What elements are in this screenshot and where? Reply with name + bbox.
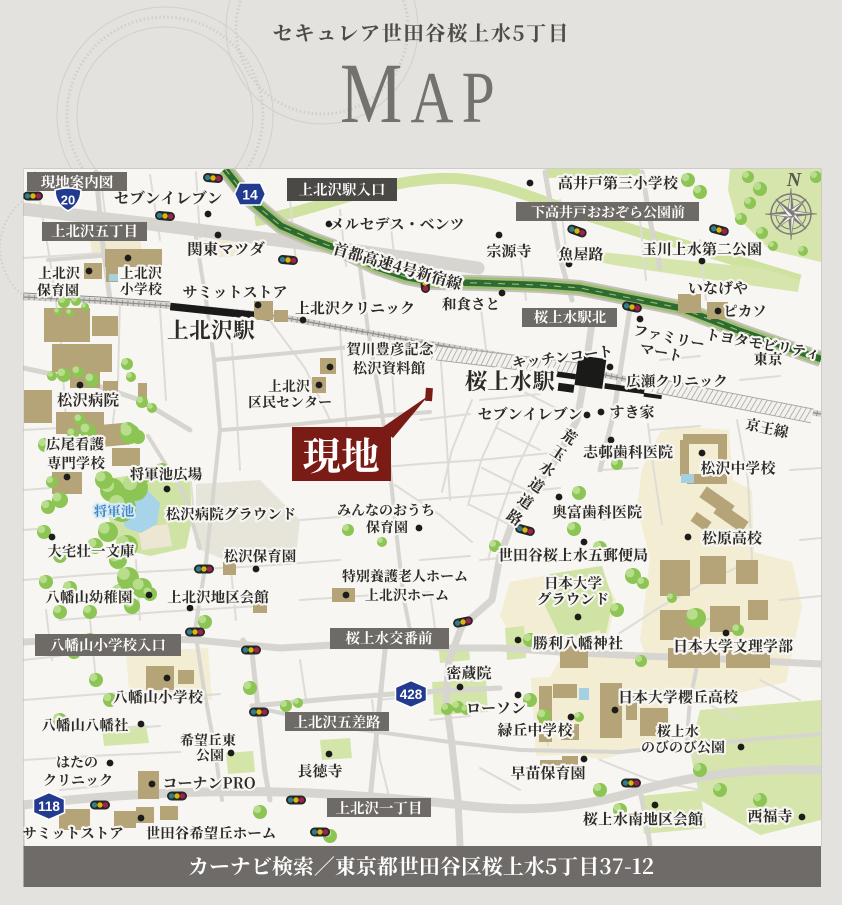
svg-text:20: 20 bbox=[61, 193, 75, 208]
svg-text:118: 118 bbox=[38, 799, 60, 814]
svg-text:N: N bbox=[786, 169, 803, 191]
svg-text:428: 428 bbox=[400, 687, 423, 702]
svg-text:14: 14 bbox=[242, 187, 258, 203]
svg-text:MAP: MAP bbox=[340, 45, 503, 140]
